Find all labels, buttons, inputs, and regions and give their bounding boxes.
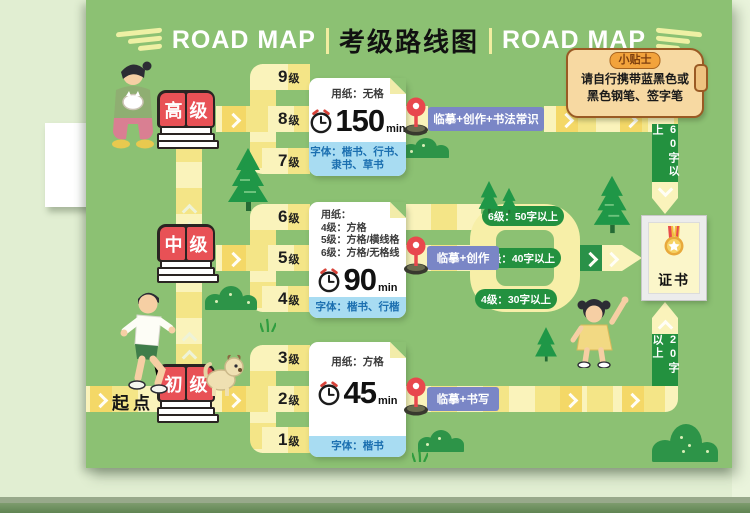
exam-minutes: 45 xyxy=(343,375,375,411)
title-divider xyxy=(326,28,329,54)
grass-tuft xyxy=(260,318,276,332)
person-squatting-with-cat xyxy=(102,58,164,152)
location-pin-icon xyxy=(403,94,429,136)
font-spec: 字体：楷书 xyxy=(309,436,406,457)
level-5-label: 5级 xyxy=(278,248,299,268)
level-8-label: 8级 xyxy=(278,109,299,129)
location-pin-icon xyxy=(403,374,429,416)
clock-icon xyxy=(309,108,333,134)
clock-icon xyxy=(317,267,341,293)
paper-spec: 4级：方格 xyxy=(309,223,406,236)
clock-icon xyxy=(317,380,341,406)
roadmap-poster-page: 起点 9级 8级 7级 60字以上 6级 5级 4级 6级：50字以上 5级：4… xyxy=(0,0,750,513)
stage-book-intermediate: 中级 xyxy=(157,224,215,283)
level-3-label: 3级 xyxy=(278,348,299,368)
advanced-word-requirement: 60字以上 xyxy=(652,124,678,182)
right-background-strip xyxy=(732,0,750,513)
white-paper-under-poster xyxy=(45,123,91,207)
level-1-label: 1级 xyxy=(278,430,299,450)
intermediate-route-label: 临摹+创作 xyxy=(427,246,499,270)
path-arrow-point-up xyxy=(652,302,678,318)
title-road-map-left: ROAD MAP xyxy=(172,26,316,55)
stage-book-advanced: 高级 xyxy=(157,90,215,149)
level4-requirement-pill: 4级：30字以上 xyxy=(475,289,557,309)
pine-tree-small xyxy=(498,187,520,214)
dog xyxy=(202,352,244,396)
paper-spec: 6级：方格/无格线 xyxy=(309,248,406,261)
bush-large xyxy=(652,422,718,462)
grass-tuft xyxy=(412,448,428,462)
title-divider xyxy=(489,28,492,54)
minutes-unit: min xyxy=(378,282,398,298)
paper-spec: 5级：方格/横线格 xyxy=(309,235,406,248)
level-4-label: 4级 xyxy=(278,289,299,309)
level-7-label: 7级 xyxy=(278,151,299,171)
bush xyxy=(205,284,257,310)
tip-scroll-card: 小贴士 请自行携带蓝黑色或黑色钢笔、签字笔 xyxy=(566,48,704,118)
tip-badge: 小贴士 xyxy=(610,52,661,69)
beginner-route-label: 临摹+书写 xyxy=(427,387,499,411)
location-pin-icon xyxy=(403,233,429,275)
advanced-route-label: 临摹+创作+书法常识 xyxy=(428,107,544,131)
title-main: 考级路线图 xyxy=(339,22,479,59)
path-arrow-point-down xyxy=(652,198,678,214)
wing-left-icon xyxy=(116,28,162,54)
level-6-label: 6级 xyxy=(278,207,299,227)
tip-text: 请自行携带蓝黑色或黑色钢笔、签字笔 xyxy=(568,71,702,105)
person-girl-pointing xyxy=(556,290,632,368)
certificate-frame: 证书 xyxy=(642,216,706,300)
exam-minutes: 150 xyxy=(335,103,384,139)
medal-icon xyxy=(661,226,687,260)
level6-route-extension xyxy=(405,204,481,230)
person-jogging xyxy=(112,290,192,394)
exam-minutes: 90 xyxy=(343,262,375,298)
bush xyxy=(402,136,450,158)
pine-tree xyxy=(226,146,270,212)
level-9-label: 9级 xyxy=(278,67,299,87)
level-2-label: 2级 xyxy=(278,389,299,409)
pine-tree-large xyxy=(588,174,636,234)
font-spec: 字体：楷书、行书、隶书、草书 xyxy=(309,142,406,176)
intermediate-info-card: 用纸： 4级：方格 5级：方格/横线格 6级：方格/无格线 90 min 字体：… xyxy=(309,202,406,318)
table-front-band xyxy=(0,503,750,513)
path-arrow-point-right xyxy=(622,245,642,271)
minutes-unit: min xyxy=(378,395,398,411)
font-spec: 字体：楷书、行楷 xyxy=(309,297,406,318)
beginner-word-requirement: 20字以上 xyxy=(652,334,678,386)
certificate-label: 证书 xyxy=(648,270,700,290)
beginner-info-card: 用纸：方格 45 min 字体：楷书 xyxy=(309,342,406,457)
advanced-info-card: 用纸：无格 150 min 字体：楷书、行书、隶书、草书 xyxy=(309,78,406,176)
